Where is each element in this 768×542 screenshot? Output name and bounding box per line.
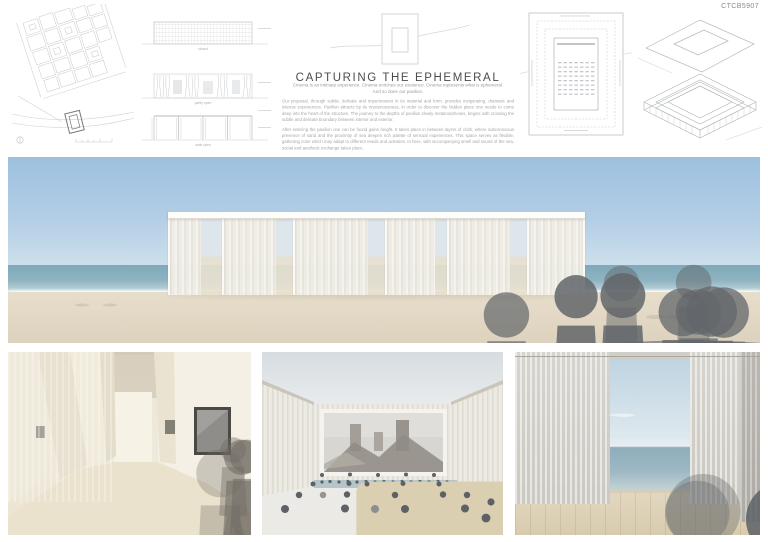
city-blocks [17,4,127,99]
elevation-wide-open: wide open [142,116,268,147]
wall-structure [644,74,756,138]
description-text: Cinema is an intimate experience. Cinema… [282,82,514,152]
main-beach-render [8,157,760,343]
competition-board: CTCB5907 [0,0,768,542]
floor-plan-drawing [520,10,632,142]
elevation-caption-1: closed [198,47,208,51]
elevation-caption-2: partly open [195,101,212,105]
paragraph-2: After entering the pavilion one can be f… [282,127,514,151]
cinema-scene [262,352,503,535]
paragraph-1: Our proposal, through subtle, delicate a… [282,98,514,122]
render-open-air-cinema [262,352,503,535]
sea-view-people [515,352,760,535]
elevation-caption-3: wide open [195,143,211,147]
beach-people-silhouettes [8,157,760,343]
audience-deck-chairs [281,473,503,536]
cinema-screen [320,409,447,476]
right-curtain-wall [451,380,503,496]
intro-line-2: And so does our pavilion. [289,88,507,94]
elevation-closed: closed [142,22,268,51]
context-lines [638,58,762,140]
roof-plane [646,20,754,72]
north-arrow-icon [17,137,23,143]
corridor-end [114,392,152,470]
render-corridor-interior [8,352,251,535]
column-hatch [650,105,750,134]
intro-line-1: Cinema is an intimate experience. Cinema… [293,83,503,88]
render-sea-view-interior [515,352,760,535]
site-plan-drawing [10,4,136,152]
scale-bar [76,139,112,142]
concept-diagram [330,8,470,68]
pavilion-site-marker [65,110,84,133]
elevation-drawings: closed partly open [140,8,274,150]
board-code: CTCB5907 [721,3,759,10]
left-curtain-wall [262,380,314,496]
corridor-scene [8,352,251,535]
elevation-partly-open: partly open [142,74,268,105]
axonometric-drawing [638,10,762,150]
gallery-screen-small [165,420,175,434]
